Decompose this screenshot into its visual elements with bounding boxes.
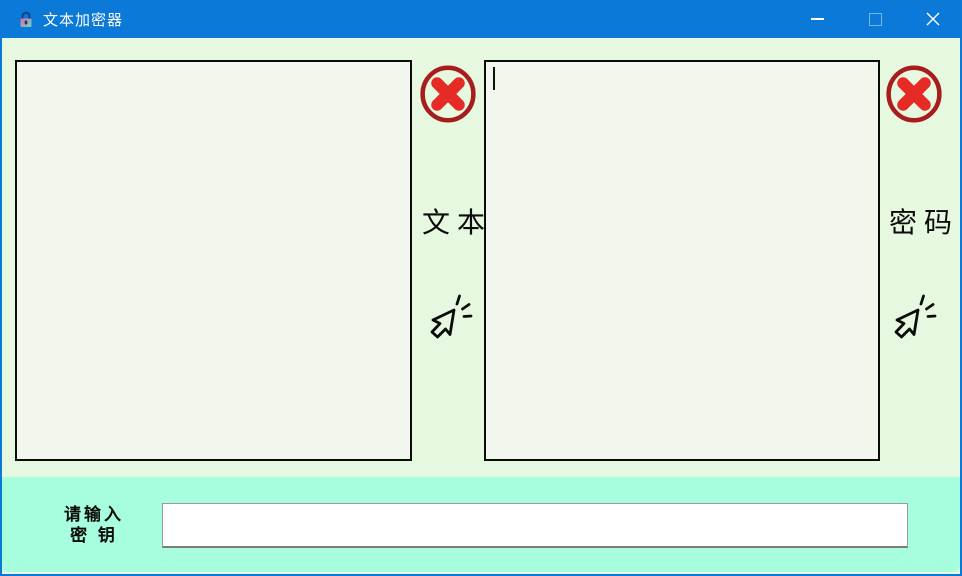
app-window: 文本加密器 文本	[0, 0, 962, 576]
cipher-input-area[interactable]	[484, 60, 880, 461]
key-label: 请输入 密 钥	[38, 504, 150, 546]
key-input[interactable]	[162, 503, 908, 548]
clear-cipher-button[interactable]	[885, 64, 943, 124]
clear-text-button[interactable]	[419, 64, 477, 124]
maximize-button[interactable]	[846, 0, 904, 38]
red-x-clear-icon	[419, 64, 477, 124]
text-caret	[493, 67, 495, 90]
click-cursor-icon	[423, 292, 475, 352]
text-panel-label: 文本	[415, 201, 479, 241]
maximize-icon	[869, 13, 882, 26]
key-label-line2: 密 钥	[38, 525, 150, 546]
titlebar: 文本加密器	[0, 0, 962, 38]
text-input-area[interactable]	[15, 60, 412, 461]
key-label-line1: 请输入	[38, 504, 150, 525]
close-button[interactable]	[904, 0, 962, 38]
lock-app-icon	[18, 11, 34, 28]
cipher-panel-label: 密码	[882, 201, 946, 241]
close-icon	[926, 12, 940, 26]
window-controls	[788, 0, 962, 38]
key-panel: 请输入 密 钥	[2, 477, 960, 572]
minimize-icon	[811, 18, 824, 20]
click-cursor-icon	[887, 292, 939, 352]
minimize-button[interactable]	[788, 0, 846, 38]
red-x-clear-icon	[885, 64, 943, 124]
window-title: 文本加密器	[43, 9, 123, 30]
